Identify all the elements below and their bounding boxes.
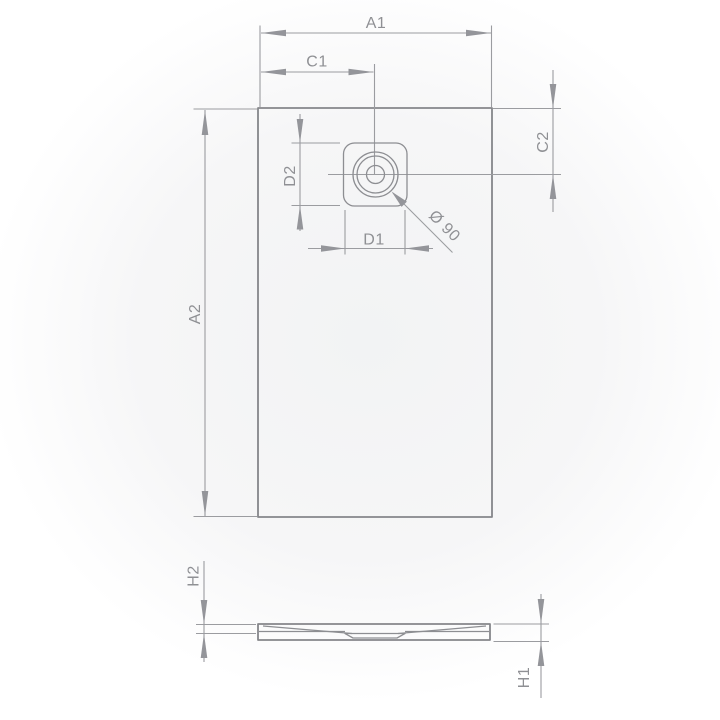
dimension-c2: C2 [493, 70, 562, 212]
dim-label-c2: C2 [535, 131, 552, 152]
drawing-canvas: Ø 90 A1 C1 A2 [0, 0, 720, 720]
arrowhead [261, 69, 286, 76]
dimension-h2: H2 [186, 561, 257, 662]
dimension-h1: H1 [494, 594, 550, 698]
profile-drain-recess [345, 634, 405, 639]
dim-label-drain-diameter: Ø 90 [425, 207, 463, 245]
arrowhead [261, 30, 286, 37]
dim-label-h1: H1 [516, 667, 533, 688]
arrowhead [538, 642, 545, 667]
plan-view: Ø 90 A1 C1 A2 [187, 15, 561, 517]
arrowhead [201, 634, 208, 659]
dimension-drain-diameter: Ø 90 [392, 192, 464, 253]
dimension-d1: D1 [308, 210, 433, 255]
arrowhead [538, 599, 545, 624]
arrowhead [297, 119, 304, 143]
drain [328, 64, 561, 206]
arrowhead [550, 84, 557, 109]
dimension-c1: C1 [261, 54, 374, 76]
dimension-a1: A1 [260, 15, 492, 107]
profile-slope-left [263, 626, 352, 634]
dim-label-a2: A2 [187, 304, 204, 325]
shower-tray-diagram: Ø 90 A1 C1 A2 [0, 0, 720, 720]
dimension-d2: D2 [282, 114, 340, 231]
arrowhead [550, 175, 557, 200]
dim-label-c1: C1 [306, 54, 327, 71]
arrowhead [201, 600, 208, 625]
arrowhead [321, 245, 345, 252]
dim-label-d2: D2 [282, 165, 299, 186]
arrowhead [297, 206, 304, 230]
side-profile-view: H2 H1 [186, 561, 550, 698]
arrowhead [349, 69, 374, 76]
dim-label-d1: D1 [363, 232, 384, 249]
dim-label-h2: H2 [186, 565, 203, 586]
arrowhead [202, 110, 209, 135]
dimension-a2: A2 [187, 109, 257, 517]
arrowhead [202, 491, 209, 516]
dim-label-a1: A1 [366, 15, 387, 32]
arrowhead [405, 245, 429, 252]
profile-interior [259, 626, 489, 638]
arrowhead [466, 30, 491, 37]
profile-slope-right [398, 626, 486, 634]
